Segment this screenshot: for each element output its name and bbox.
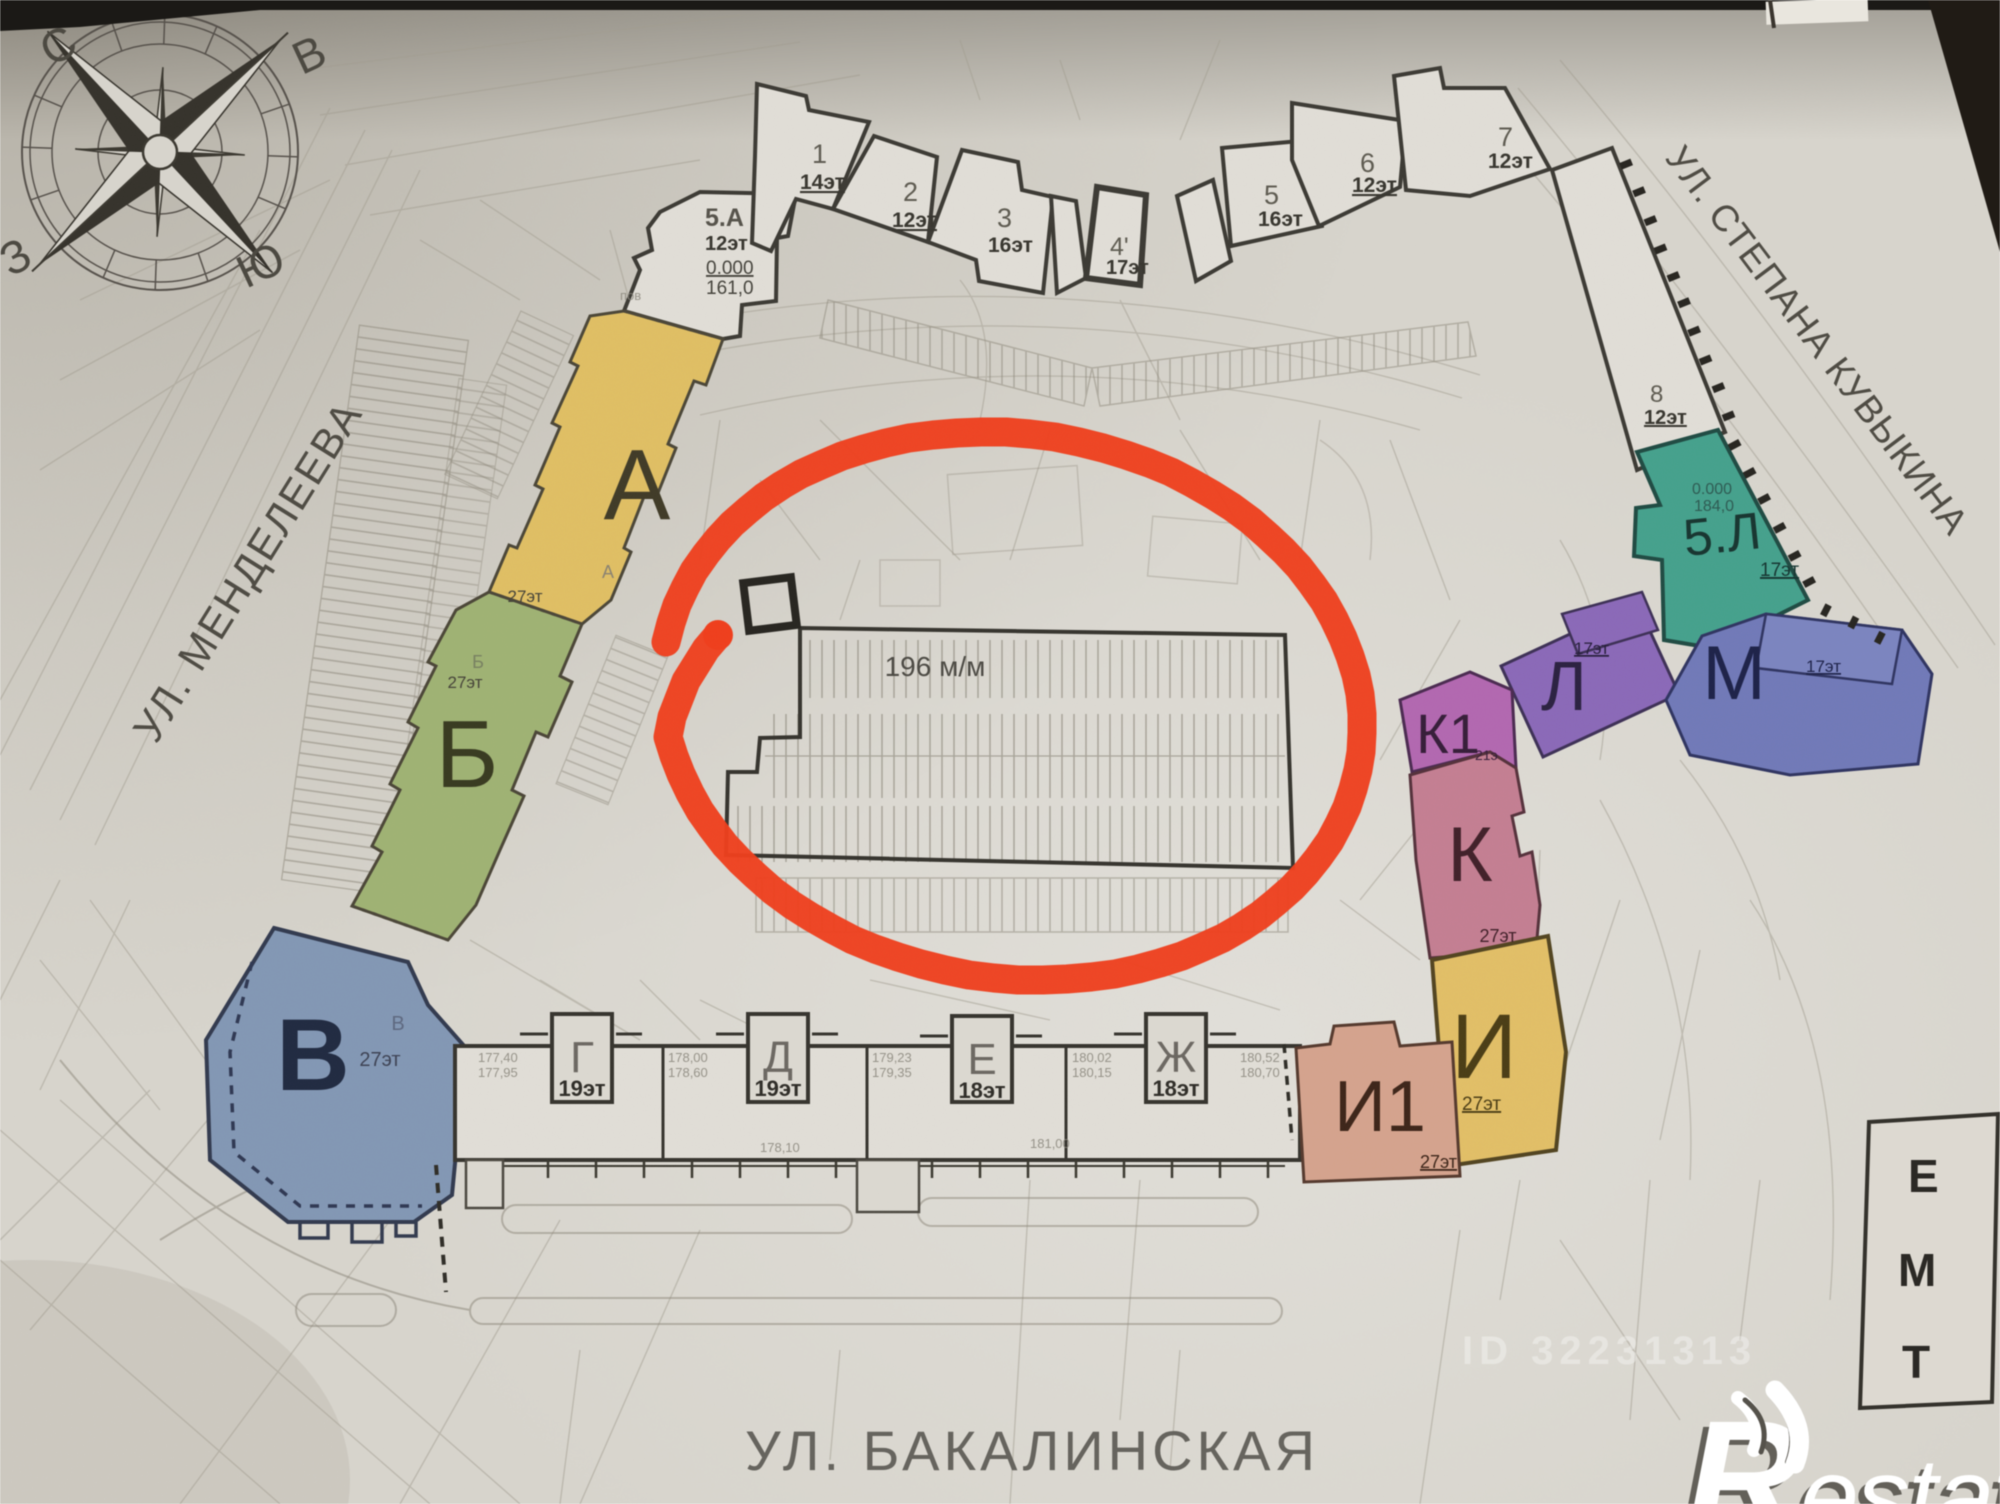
svg-text:estate: estate xyxy=(1800,1437,2000,1504)
svg-text:ID 32231313: ID 32231313 xyxy=(1462,1329,1757,1373)
svg-text:Т: Т xyxy=(1902,1336,1930,1388)
svg-text:Е: Е xyxy=(1908,1150,1939,1202)
svg-text:М: М xyxy=(1898,1244,1936,1296)
